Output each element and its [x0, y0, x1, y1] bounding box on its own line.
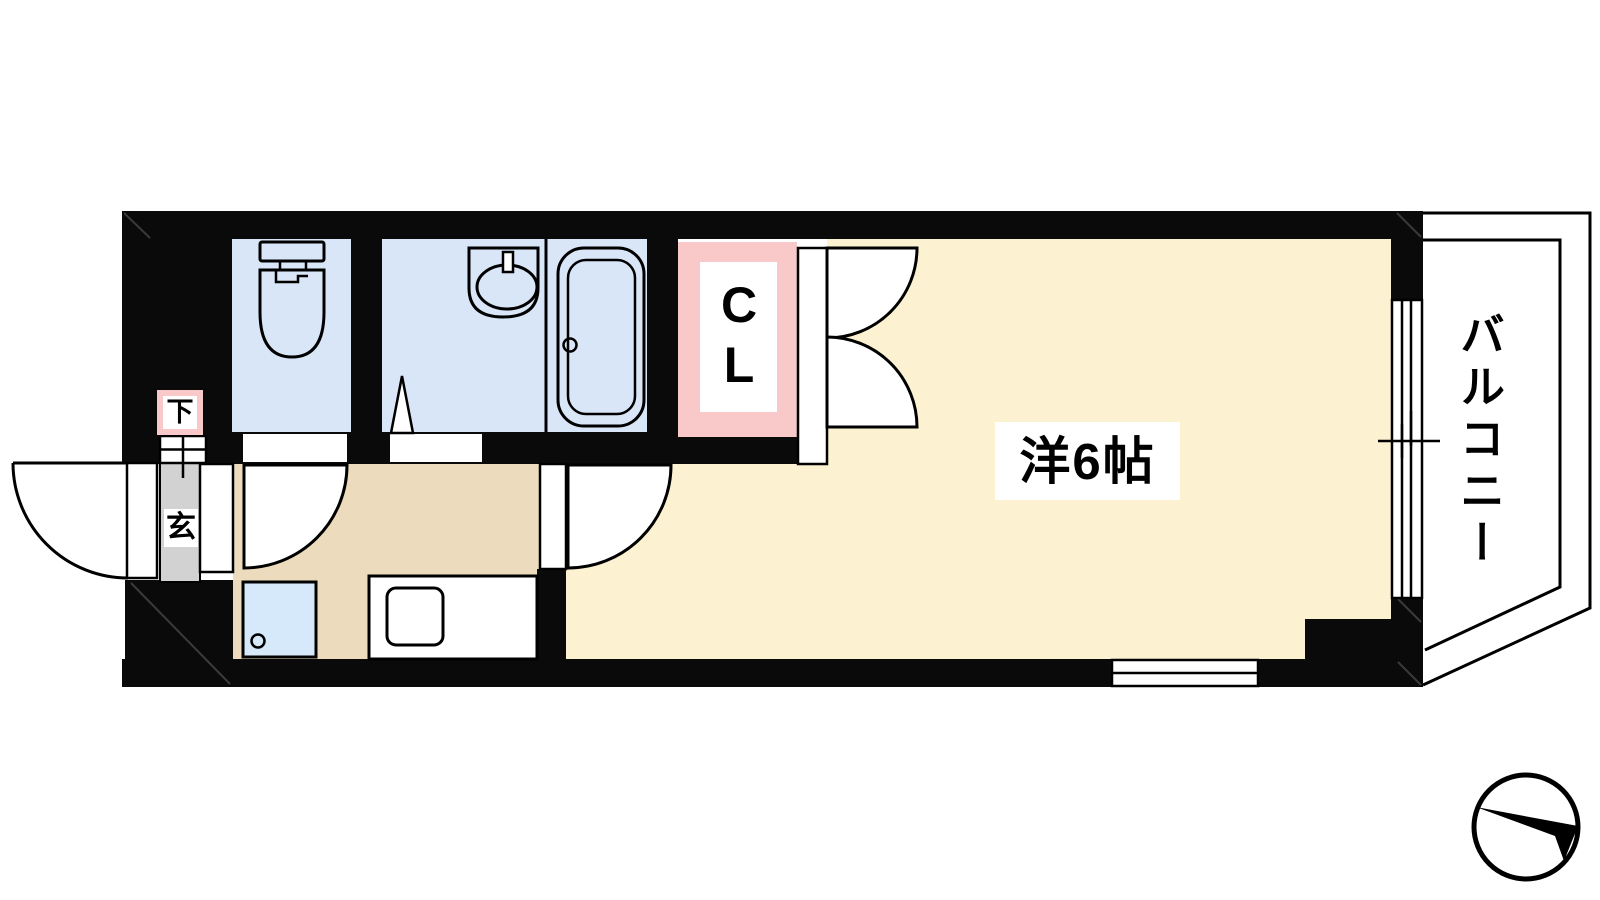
toilet-door-opening [243, 434, 347, 462]
main-room-label: 洋6帖 [995, 422, 1180, 500]
shoe-cabinet-label: 下 [163, 396, 197, 429]
window-bottom [1112, 660, 1258, 686]
washing-machine-icon [243, 582, 316, 657]
toilet-room-floor [232, 239, 351, 432]
closet-label: CL [700, 262, 777, 412]
entrance-door-swing [13, 463, 157, 578]
entrance-label: 玄 [164, 509, 198, 547]
balcony-label: バルコニー [1446, 248, 1510, 633]
floor-plan: 洋6帖 CL バルコニー 玄 下 [0, 0, 1600, 900]
floor-plan-drawing [0, 0, 1600, 900]
north-arrow-icon [1474, 775, 1578, 879]
bathroom-floor [382, 239, 647, 432]
bathroom-door-opening [390, 434, 482, 462]
kitchen-sink-icon [387, 588, 443, 645]
